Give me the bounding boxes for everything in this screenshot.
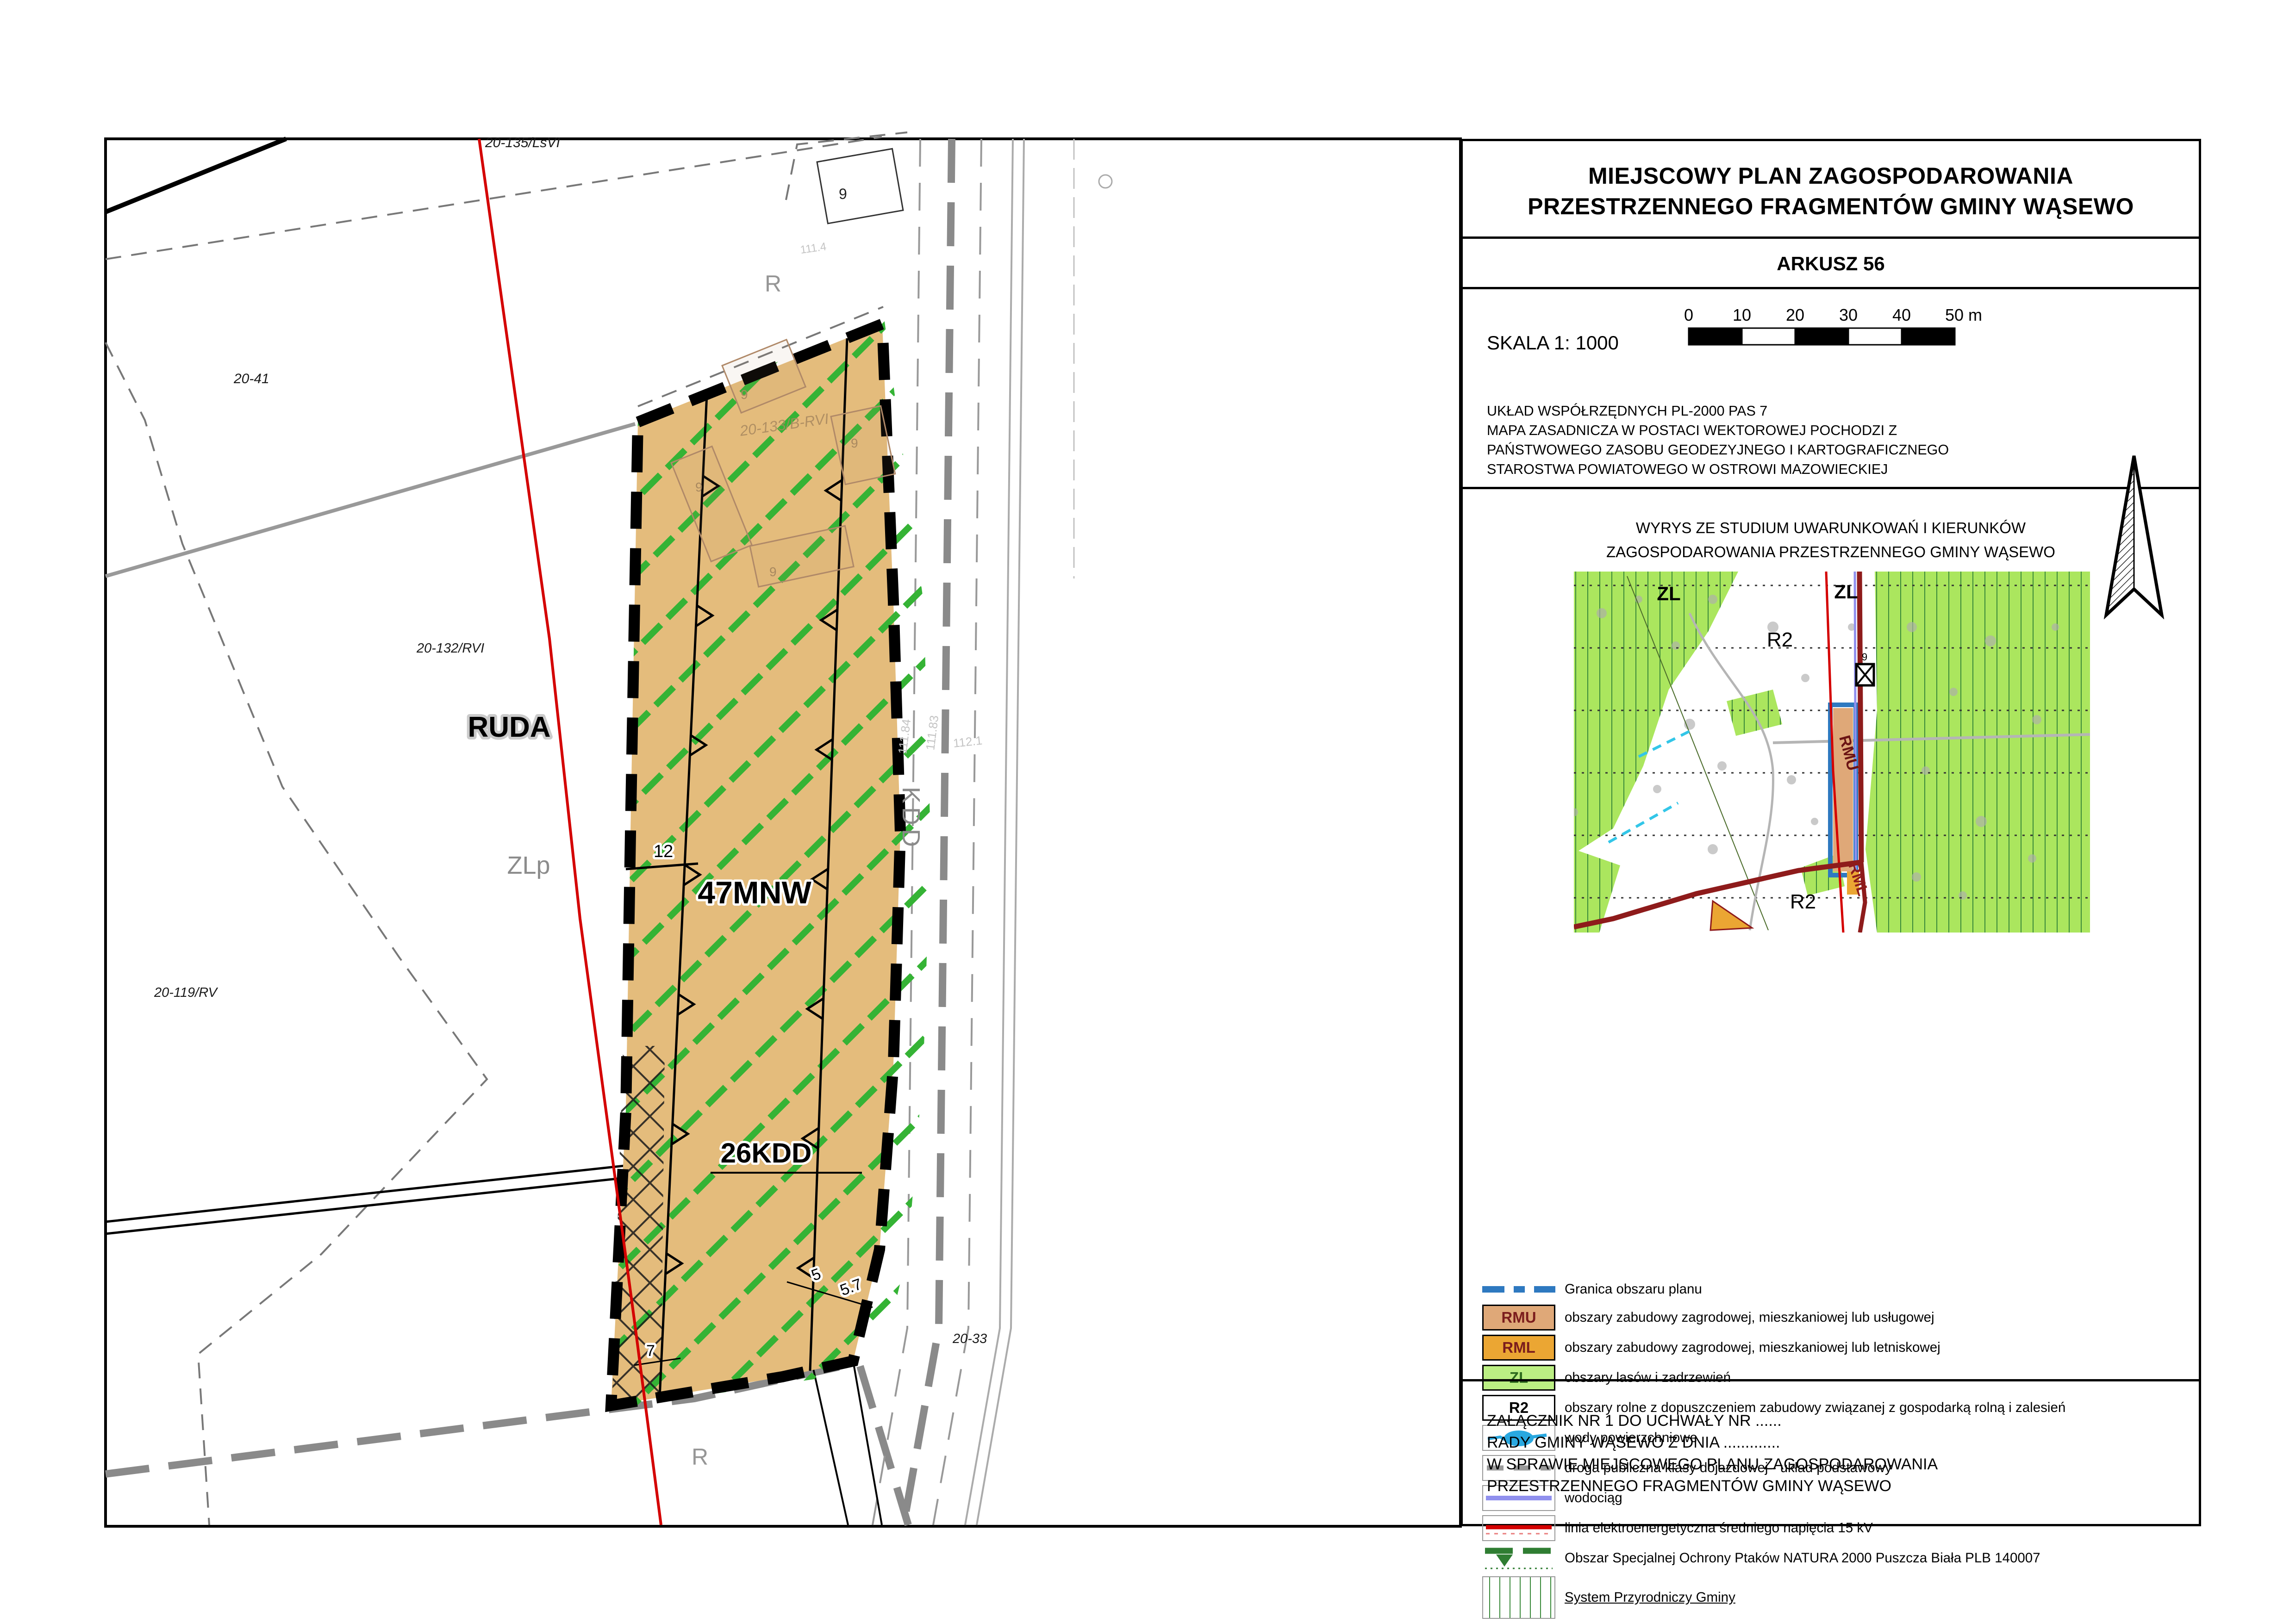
annex-line: RADY GMINY WĄSEWO Z DNIA ............. xyxy=(1487,1432,1938,1454)
studium-inset-map: ZL ZL R2 R2 RMU RML 9 xyxy=(1574,572,2090,933)
rmu-swatch: RMU xyxy=(1482,1305,1555,1331)
sheet-title-line1: MIEJSCOWY PLAN ZAGOSPODAROWANIA xyxy=(1463,161,2199,191)
r-label-bottom: R xyxy=(692,1444,708,1470)
inset-label-r2-lower: R2 xyxy=(1790,890,1816,913)
r-label-top: R xyxy=(765,271,781,297)
scale-block: SKALA 1: 1000 0 10 20 30 40 50 m xyxy=(1463,289,2199,489)
inset-label-zl-right: ZL xyxy=(1834,581,1858,603)
source-notes: UKŁAD WSPÓŁRZĘDNYCH PL-2000 PAS 7 MAPA Z… xyxy=(1487,401,1949,479)
legend-row-rml: RML obszary zabudowy zagrodowej, mieszka… xyxy=(1482,1335,2195,1361)
plan-boundary-symbol xyxy=(1482,1285,1555,1293)
legend-label: Obszar Specjalnej Ochrony Ptaków NATURA … xyxy=(1565,1550,2040,1566)
scale-tick-50m: 50 m xyxy=(1945,305,1982,324)
parcel-20-135: 20-135/LsVI xyxy=(485,135,560,150)
natural-system-symbol xyxy=(1482,1576,1555,1619)
dim-7: 7 xyxy=(646,1342,655,1360)
zlp-label: ZLp xyxy=(507,852,550,879)
scale-bar: 0 10 20 30 40 50 m xyxy=(1680,304,1995,355)
scale-tick-10: 10 xyxy=(1733,305,1751,324)
building-label-9-top: 9 xyxy=(839,186,847,202)
building-label-9b: 9 xyxy=(741,387,748,402)
building-label-9a: 9 xyxy=(695,480,703,494)
sheet-number: ARKUSZ 56 xyxy=(1463,239,2199,289)
legend-row-natura: Obszar Specjalnej Ochrony Ptaków NATURA … xyxy=(1482,1545,2195,1571)
inset-label-zl-left: ZL xyxy=(1657,583,1680,604)
kdd-road-label: KDD xyxy=(897,787,925,851)
parcel-20-41: 20-41 xyxy=(233,371,269,386)
legend-row-rmu: RMU obszary zabudowy zagrodowej, mieszka… xyxy=(1482,1305,2195,1331)
legend-label: obszary zabudowy zagrodowej, mieszkaniow… xyxy=(1565,1310,1934,1325)
sheet-title-line2: PRZESTRZENNEGO FRAGMENTÓW GMINY WĄSEWO xyxy=(1463,191,2199,222)
annex-block: ZAŁĄCZNIK NR 1 DO UCHWAŁY NR ...... RADY… xyxy=(1463,1379,2199,1526)
studium-heading-line1: WYRYS ZE STUDIUM UWARUNKOWAŃ I KIERUNKÓW xyxy=(1463,516,2199,540)
parcel-20-33: 20-33 xyxy=(952,1331,987,1346)
title-block: MIEJSCOWY PLAN ZAGOSPODAROWANIA PRZESTRZ… xyxy=(1463,141,2199,239)
inset-label-b: 9 xyxy=(1862,651,1867,663)
zone-label-26kdd: 26KDD xyxy=(721,1138,812,1169)
scale-tick-40: 40 xyxy=(1892,305,1911,324)
scale-label: SKALA 1: 1000 xyxy=(1487,332,1619,354)
inset-label-r2-upper: R2 xyxy=(1767,628,1793,651)
natura2000-symbol xyxy=(1482,1545,1555,1571)
annex-line: PRZESTRZENNEGO FRAGMENTÓW GMINY WĄSEWO xyxy=(1487,1475,1938,1497)
inset-wodociag-line xyxy=(1855,572,1856,871)
source-line: MAPA ZASADNICZA W POSTACI WEKTOROWEJ POC… xyxy=(1487,421,1949,440)
legend-row-system: System Przyrodniczy Gminy xyxy=(1482,1575,2195,1620)
source-line: STAROSTWA POWIATOWEGO W OSTROWI MAZOWIEC… xyxy=(1487,460,1949,479)
scale-tick-0: 0 xyxy=(1684,305,1693,324)
info-panel: MIEJSCOWY PLAN ZAGOSPODAROWANIA PRZESTRZ… xyxy=(1460,139,2201,1526)
legend-label: System Przyrodniczy Gminy xyxy=(1565,1590,1735,1605)
inset-historic-object-icon xyxy=(1856,664,1874,685)
source-line: PAŃSTWOWEGO ZASOBU GEODEZYJNEGO I KARTOG… xyxy=(1487,440,1949,460)
village-label-ruda: RUDA xyxy=(468,711,550,743)
studium-heading-line2: ZAGOSPODAROWANIA PRZESTRZENNEGO GMINY WĄ… xyxy=(1463,540,2199,564)
parcel-20-132: 20-132/RVI xyxy=(416,641,484,656)
legend-row-boundary: Granica obszaru planu xyxy=(1482,1281,2195,1297)
building-label-9c: 9 xyxy=(769,565,777,579)
inset-rmu-area xyxy=(1833,708,1853,871)
parcel-20-119: 20-119/RV xyxy=(154,985,218,1000)
legend-label: Granica obszaru planu xyxy=(1565,1281,1702,1297)
scale-tick-30: 30 xyxy=(1839,305,1858,324)
scale-tick-20: 20 xyxy=(1786,305,1804,324)
parcel-12: 12 xyxy=(654,842,673,861)
plan-sheet: 47MNW 26KDD RUDA ZLp KDD R R 20-41 20-13… xyxy=(0,0,2296,1623)
studium-heading: WYRYS ZE STUDIUM UWARUNKOWAŃ I KIERUNKÓW… xyxy=(1463,516,2199,564)
rml-swatch: RML xyxy=(1482,1335,1555,1361)
source-line: UKŁAD WSPÓŁRZĘDNYCH PL-2000 PAS 7 xyxy=(1487,401,1949,421)
zone-label-47mnw: 47MNW xyxy=(698,875,811,910)
legend-label: obszary zabudowy zagrodowej, mieszkaniow… xyxy=(1565,1340,1940,1356)
annex-line: ZAŁĄCZNIK NR 1 DO UCHWAŁY NR ...... xyxy=(1487,1410,1938,1432)
building-label-9d: 9 xyxy=(851,436,858,450)
annex-line: W SPRAWIE MIEJSCOWEGO PLANU ZAGOSPODAROW… xyxy=(1487,1454,1938,1475)
studium-block: WYRYS ZE STUDIUM UWARUNKOWAŃ I KIERUNKÓW… xyxy=(1463,489,2199,1379)
